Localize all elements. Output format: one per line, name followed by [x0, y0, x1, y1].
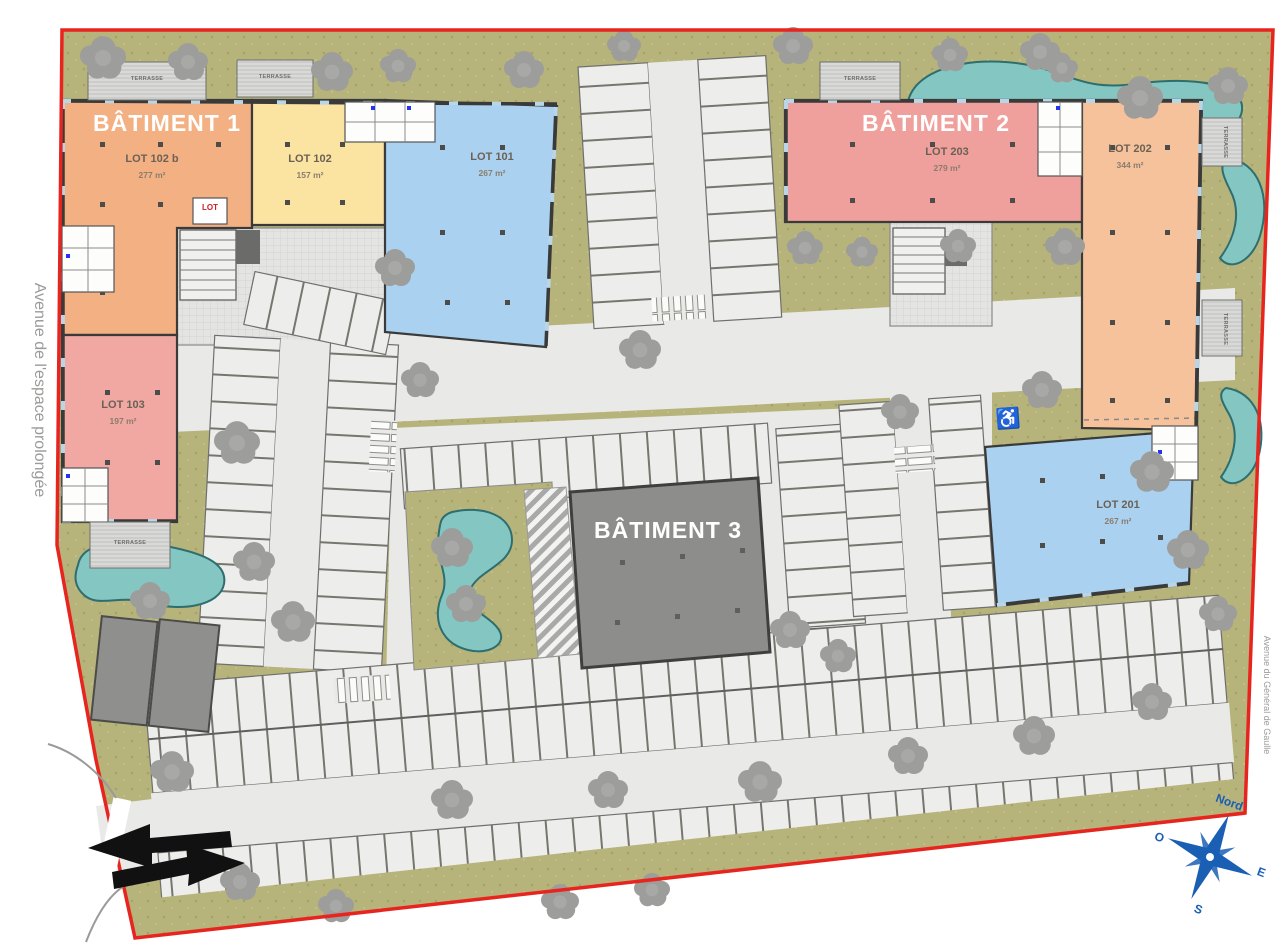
lot-201-label: LOT 201 [1096, 499, 1139, 511]
crosswalk-right [894, 445, 936, 474]
sanitary-block-lot103 [62, 468, 108, 522]
street-label-right: Avenue du Général de Gaulle [1262, 636, 1272, 754]
lot-103-area: 197 m² [110, 416, 137, 426]
terrace-label: TERRASSE [844, 76, 876, 82]
terrace-label: TERRASSE [1222, 126, 1228, 158]
service-blocks [91, 613, 220, 732]
lot-201-area: 267 m² [1105, 516, 1132, 526]
sanitary-block-b1 [345, 102, 435, 142]
terrace-label: TERRASSE [259, 74, 291, 80]
site-plan: ♿ ♿ ♿ [0, 0, 1280, 949]
lot-101-area: 267 m² [479, 168, 506, 178]
building-3-label: BÂTIMENT 3 [594, 516, 742, 543]
lot-102-label: LOT 102 [288, 153, 331, 165]
handicap-icon: ♿ [995, 405, 1022, 431]
lot-102b-area: 277 m² [139, 170, 166, 180]
lot-202-area: 344 m² [1117, 160, 1144, 170]
site-plan-page: ♿ ♿ ♿ [0, 0, 1280, 949]
sanitary-block-b2 [1038, 102, 1082, 176]
lot-103-label: LOT 103 [101, 399, 144, 411]
crosswalk-west [369, 419, 398, 472]
lot-202-label: LOT 202 [1108, 143, 1151, 155]
lot-101-label: LOT 101 [470, 151, 513, 163]
building-3 [570, 478, 770, 668]
bike-room-label: LOT [202, 203, 218, 212]
crosswalk-bottom-left [333, 674, 391, 704]
terrace-label: TERRASSE [131, 76, 163, 82]
lot-102b-label: LOT 102 b [125, 153, 178, 165]
street-label-left: Avenue de l'espace prolongée [31, 283, 48, 498]
crosswalk-top [651, 294, 708, 321]
lot-203-label: LOT 203 [925, 146, 968, 158]
building-2-label: BÂTIMENT 2 [862, 109, 1010, 136]
parking-top-middle [578, 56, 782, 329]
terrace-label: TERRASSE [114, 540, 146, 546]
building-1-label: BÂTIMENT 1 [93, 109, 241, 136]
lot-102-area: 157 m² [297, 170, 324, 180]
terrace-label: TERRASSE [1222, 313, 1228, 345]
lot-203-area: 279 m² [934, 163, 961, 173]
bike-room-box: LOT [193, 198, 227, 224]
sanitary-block-left [62, 226, 114, 292]
